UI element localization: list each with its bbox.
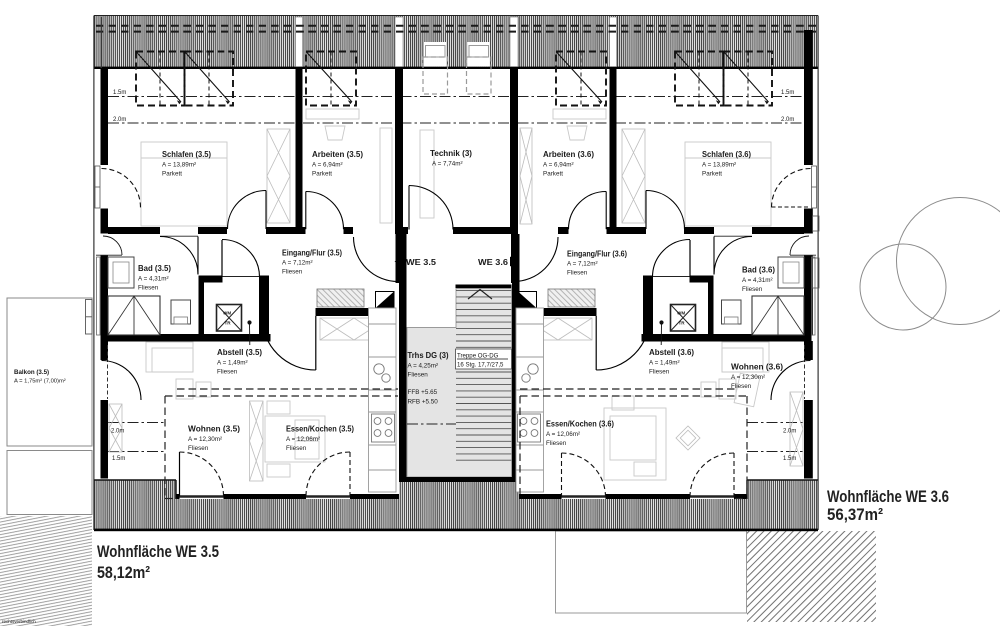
- svg-text:Eingang/Flur (3.6): Eingang/Flur (3.6): [567, 250, 627, 259]
- svg-text:TR: TR: [679, 321, 686, 326]
- svg-text:rechtsverbindlich: rechtsverbindlich: [2, 619, 36, 624]
- svg-text:Arbeiten (3.6): Arbeiten (3.6): [543, 150, 594, 159]
- svg-text:Abstell (3.5): Abstell (3.5): [217, 348, 262, 357]
- svg-text:Fliesen: Fliesen: [138, 285, 159, 292]
- svg-text:A = 4,31m²: A = 4,31m²: [138, 276, 169, 283]
- svg-text:A = 7,12m²: A = 7,12m²: [567, 261, 598, 268]
- svg-text:1.5m: 1.5m: [112, 456, 125, 462]
- svg-text:2.0m: 2.0m: [783, 429, 796, 435]
- svg-text:1.5m: 1.5m: [113, 90, 126, 96]
- svg-text:1.5m: 1.5m: [781, 90, 794, 96]
- svg-text:A = 4,31m²: A = 4,31m²: [742, 277, 773, 284]
- svg-text:A = 6,94m²: A = 6,94m²: [543, 162, 574, 169]
- svg-text:A = 1,49m²: A = 1,49m²: [649, 360, 680, 367]
- svg-text:2.0m: 2.0m: [111, 429, 124, 435]
- svg-text:Technik (3): Technik (3): [430, 149, 472, 158]
- svg-text:Fliesen: Fliesen: [286, 445, 307, 452]
- svg-text:1.5m: 1.5m: [783, 456, 796, 462]
- svg-text:Treppe OG-DG: Treppe OG-DG: [457, 353, 499, 360]
- svg-text:Fliesen: Fliesen: [649, 369, 670, 376]
- svg-text:A = 7,12m²: A = 7,12m²: [282, 260, 313, 267]
- svg-text:A = 13,89m²: A = 13,89m²: [162, 162, 196, 169]
- svg-text:58,12m²: 58,12m²: [97, 564, 150, 582]
- svg-text:WE 3.5: WE 3.5: [406, 257, 436, 267]
- svg-text:Wohnfläche WE 3.6: Wohnfläche WE 3.6: [827, 488, 949, 506]
- svg-text:A = 13,89m²: A = 13,89m²: [702, 162, 736, 169]
- svg-text:TR: TR: [225, 321, 232, 326]
- svg-text:A = 12,30m²: A = 12,30m²: [188, 436, 222, 443]
- svg-text:Fliesen: Fliesen: [731, 383, 752, 390]
- svg-text:Bad (3.5): Bad (3.5): [138, 264, 171, 273]
- svg-text:Bad (3.6): Bad (3.6): [742, 266, 775, 275]
- svg-text:WM: WM: [677, 311, 685, 316]
- svg-text:2.0m: 2.0m: [113, 117, 126, 123]
- svg-text:Abstell (3.6): Abstell (3.6): [649, 348, 694, 357]
- svg-text:Arbeiten (3.5): Arbeiten (3.5): [312, 150, 363, 159]
- svg-text:Fliesen: Fliesen: [188, 445, 209, 452]
- svg-text:16 Stg. 17,7/27,5: 16 Stg. 17,7/27,5: [457, 362, 504, 369]
- svg-text:Wohnen (3.5): Wohnen (3.5): [188, 425, 240, 434]
- svg-text:Balkon (3.5): Balkon (3.5): [14, 369, 49, 376]
- svg-text:Schlafen (3.6): Schlafen (3.6): [702, 150, 751, 159]
- svg-text:Fliesen: Fliesen: [217, 369, 238, 376]
- svg-text:WE 3.6: WE 3.6: [478, 257, 508, 267]
- svg-text:A = 12,06m²: A = 12,06m²: [546, 431, 580, 438]
- svg-text:A = 7,74m²: A = 7,74m²: [432, 161, 463, 168]
- svg-text:56,37m²: 56,37m²: [827, 506, 883, 524]
- svg-text:Parkett: Parkett: [543, 171, 563, 178]
- svg-text:A = 6,94m²: A = 6,94m²: [312, 162, 343, 169]
- svg-text:RFB +5.50: RFB +5.50: [408, 399, 439, 406]
- svg-text:2.0m: 2.0m: [781, 117, 794, 123]
- svg-text:A = 1,49m²: A = 1,49m²: [217, 360, 248, 367]
- svg-text:Fliesen: Fliesen: [282, 269, 303, 276]
- svg-text:Essen/Kochen (3.5): Essen/Kochen (3.5): [286, 425, 354, 434]
- svg-text:A = 4,25m²: A = 4,25m²: [408, 363, 439, 370]
- svg-text:Fliesen: Fliesen: [742, 286, 763, 293]
- svg-text:Trhs DG (3): Trhs DG (3): [408, 351, 449, 360]
- svg-text:Wohnen (3.6): Wohnen (3.6): [731, 363, 783, 372]
- svg-text:Parkett: Parkett: [312, 171, 332, 178]
- svg-text:Fliesen: Fliesen: [567, 270, 588, 277]
- svg-text:Essen/Kochen (3.6): Essen/Kochen (3.6): [546, 420, 614, 429]
- svg-text:FFB +5.65: FFB +5.65: [408, 389, 438, 396]
- svg-text:Parkett: Parkett: [162, 171, 182, 178]
- svg-text:WM: WM: [223, 311, 231, 316]
- svg-text:Fliesen: Fliesen: [546, 440, 567, 447]
- svg-text:Wohnfläche WE 3.5: Wohnfläche WE 3.5: [97, 543, 219, 561]
- svg-text:Fliesen: Fliesen: [408, 372, 429, 379]
- svg-text:A = 12,06m²: A = 12,06m²: [286, 436, 320, 443]
- svg-text:A = 12,30m²: A = 12,30m²: [731, 374, 765, 381]
- svg-text:Parkett: Parkett: [702, 171, 722, 178]
- svg-text:Schlafen (3.5): Schlafen (3.5): [162, 150, 211, 159]
- svg-text:A = 1,75m² (7,00)m²: A = 1,75m² (7,00)m²: [14, 379, 66, 385]
- svg-text:Eingang/Flur (3.5): Eingang/Flur (3.5): [282, 249, 342, 258]
